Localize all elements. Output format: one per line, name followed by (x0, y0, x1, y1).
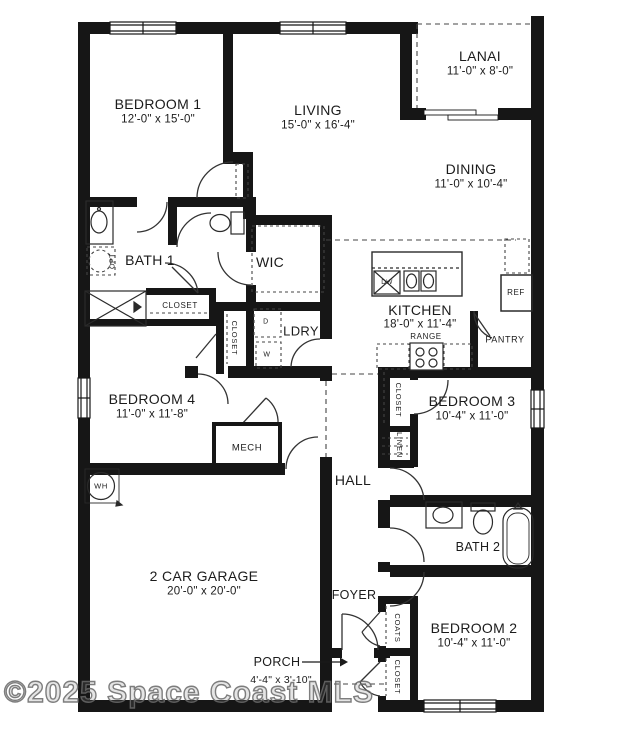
closet-bed2-label: CLOSET (393, 660, 401, 695)
dw-label: DW (381, 280, 392, 287)
bath1-toilet-icon (210, 212, 244, 234)
mech-door (266, 398, 278, 424)
garage-entry-door (286, 437, 318, 469)
window-bedroom2 (424, 700, 496, 712)
garage-dims: 20'-0" x 20'-0" (167, 586, 241, 598)
opt-label: OPT (110, 253, 117, 269)
closet-bed4-label: CLOSET (230, 321, 238, 356)
lanai-dims: 11'-0" x 8'-0" (447, 66, 513, 78)
opt-tub-circle (89, 250, 111, 272)
wh-label: WH (94, 482, 108, 490)
watermark: ©2025 Space Coast MLS (4, 676, 374, 710)
porch-label: PORCH (254, 656, 301, 669)
counter-left-of-range (377, 344, 409, 369)
kitchen-island (372, 252, 462, 296)
pantry-label: PANTRY (485, 336, 524, 345)
ldry-label: LDRY (283, 325, 319, 338)
counter-right-of-range (444, 344, 472, 369)
bedroom2-label: BEDROOM 2 (431, 621, 518, 635)
counter-by-ref (505, 239, 529, 273)
wic-label: WIC (256, 255, 284, 269)
washer-label: W (263, 352, 270, 359)
ldry-door (291, 339, 320, 367)
window-bedroom3 (531, 390, 544, 428)
wic-door (218, 252, 251, 285)
bedroom4-dims: 11'-0" x 11'-8" (116, 409, 188, 421)
kitchen-dims: 18'-0" x 11'-4" (384, 319, 457, 331)
living-label: LIVING (294, 103, 342, 117)
foyer-label: FOYER (332, 589, 377, 602)
window-bedroom4 (78, 378, 90, 418)
window-living (280, 22, 346, 34)
bedroom1-door (197, 162, 233, 198)
closet-bed4-door-leaf (196, 334, 216, 358)
mech-door-leaf (242, 398, 266, 424)
bath2-door (390, 528, 424, 562)
lanai-label: LANAI (459, 49, 501, 63)
range-icon (410, 343, 443, 370)
hall-label: HALL (335, 473, 371, 487)
mech-label: MECH (232, 443, 262, 453)
range-label: RANGE (410, 333, 441, 341)
closet-bed3-label: CLOSET (394, 383, 402, 418)
bath1-door (137, 202, 167, 232)
garage-label: 2 CAR GARAGE (150, 569, 259, 583)
bath1-label: BATH 1 (125, 253, 175, 267)
dining-dims: 11'-0" x 10'-4" (435, 179, 508, 191)
bedroom1-dims: 12'-0" x 15'-0" (121, 114, 195, 126)
floor-plan: BEDROOM 1 12'-0" x 15'-0" LIVING 15'-0" … (0, 0, 638, 736)
bath1-sink-icon (86, 201, 113, 244)
bath2-toilet-icon (471, 503, 495, 534)
linen-label: LINEN (395, 432, 403, 458)
bedroom4-label: BEDROOM 4 (109, 392, 196, 406)
dryer-label: D (263, 319, 269, 326)
ref-label: REF (507, 289, 525, 297)
bedroom4-door (198, 374, 228, 404)
window-bedroom1 (110, 22, 176, 34)
closet-bath1-label: CLOSET (162, 302, 198, 310)
bedroom1-label: BEDROOM 1 (115, 97, 202, 111)
dining-label: DINING (446, 162, 497, 176)
bedroom2-dims: 10'-4" x 11'-0" (438, 638, 511, 650)
doors (137, 162, 492, 696)
bath2-label: BATH 2 (456, 541, 501, 554)
sliding-door-dining (424, 110, 498, 120)
kitchen-label: KITCHEN (388, 303, 452, 317)
bedroom3-label: BEDROOM 3 (429, 394, 516, 408)
kitchen-sink-icon (404, 271, 436, 291)
living-dims: 15'-0" x 16'-4" (281, 120, 355, 132)
bedroom3-dims: 10'-4" x 11'-0" (436, 411, 509, 423)
bath2-tub-icon (503, 503, 533, 568)
coats-label: COATS (393, 613, 401, 642)
water-closet-door (177, 213, 211, 247)
